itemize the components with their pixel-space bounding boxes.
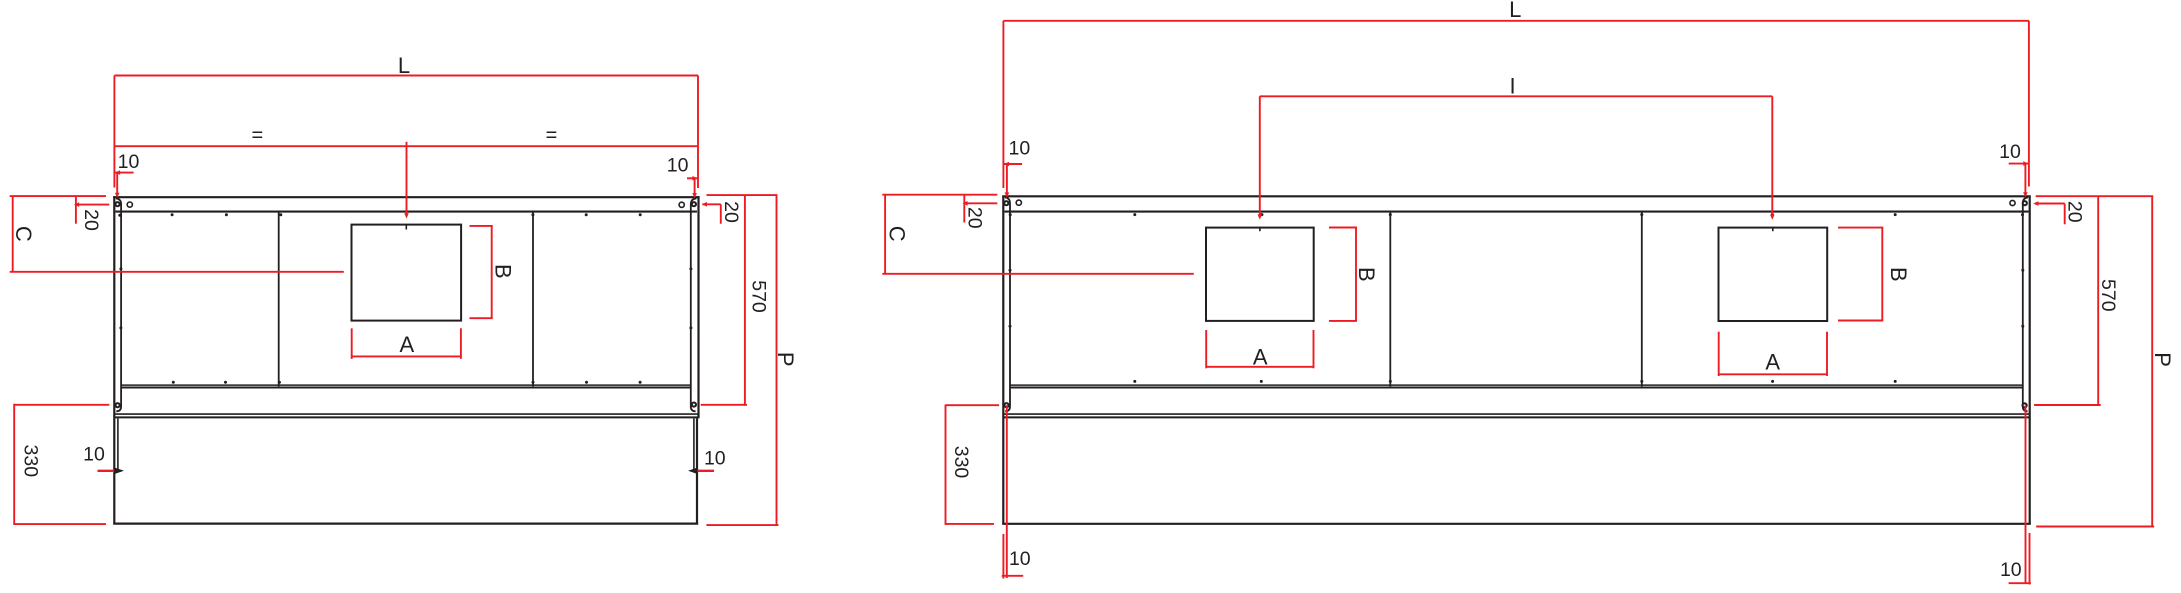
- svg-text:570: 570: [2097, 279, 2119, 312]
- svg-text:20: 20: [964, 207, 986, 229]
- svg-text:20: 20: [720, 201, 742, 223]
- svg-text:=: =: [251, 125, 263, 147]
- svg-text:10: 10: [1009, 548, 1031, 570]
- svg-text:570: 570: [747, 280, 769, 313]
- svg-text:P: P: [2150, 352, 2175, 367]
- svg-text:A: A: [1765, 349, 1780, 374]
- svg-text:10: 10: [1999, 141, 2021, 163]
- svg-text:10: 10: [83, 444, 105, 466]
- svg-text:B: B: [491, 264, 516, 279]
- svg-text:10: 10: [118, 151, 140, 173]
- svg-text:10: 10: [1009, 138, 1031, 160]
- svg-text:L: L: [398, 53, 410, 78]
- svg-text:=: =: [546, 125, 558, 147]
- svg-text:I: I: [1509, 74, 1515, 99]
- svg-text:L: L: [1509, 0, 1521, 22]
- svg-text:20: 20: [80, 209, 102, 231]
- svg-text:C: C: [11, 226, 36, 242]
- svg-text:330: 330: [950, 446, 972, 479]
- svg-text:A: A: [1253, 344, 1268, 369]
- svg-text:330: 330: [19, 445, 41, 478]
- svg-text:10: 10: [2000, 559, 2022, 581]
- svg-text:A: A: [399, 332, 414, 357]
- svg-text:P: P: [773, 352, 798, 367]
- svg-text:B: B: [1354, 267, 1379, 282]
- svg-text:10: 10: [667, 155, 689, 177]
- svg-text:10: 10: [704, 448, 726, 470]
- svg-text:B: B: [1886, 267, 1911, 282]
- svg-text:20: 20: [2063, 201, 2085, 223]
- svg-text:C: C: [885, 226, 910, 242]
